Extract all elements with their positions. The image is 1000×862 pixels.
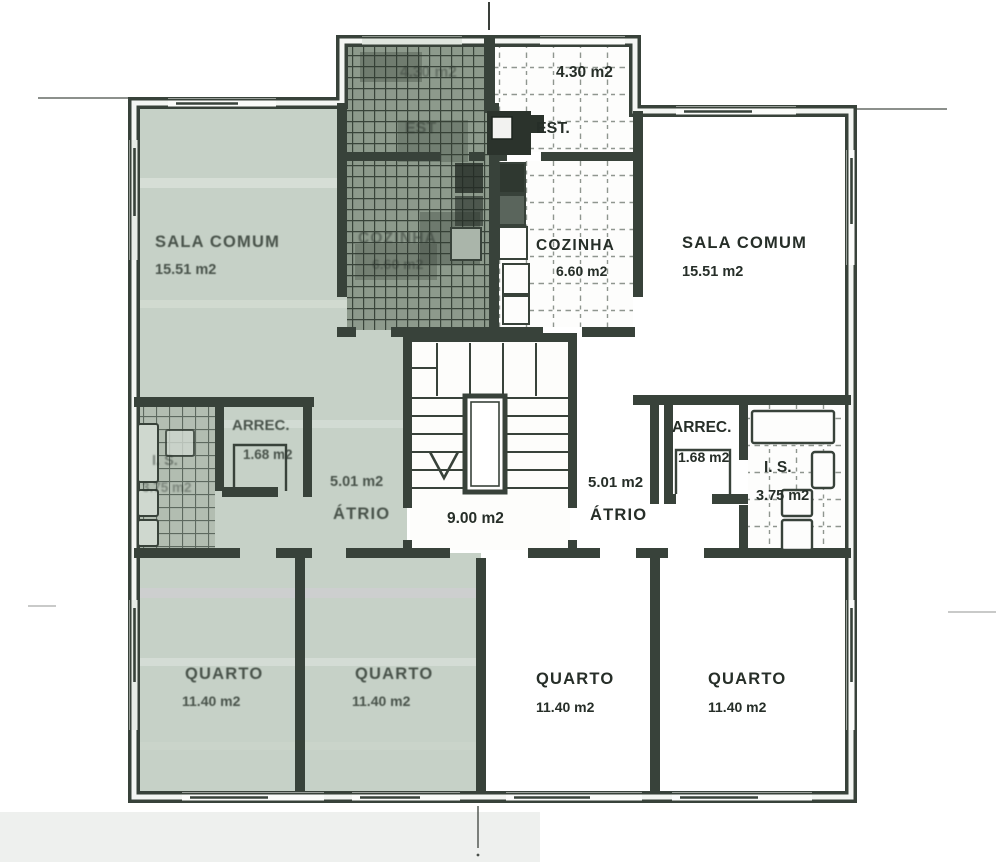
room-label-atrio-right: ÁTRIO — [590, 505, 647, 524]
room-label-quarto-3: QUARTO — [536, 670, 614, 688]
kitchen-left-fixtures — [451, 163, 483, 260]
room-label-arrec-right: ARREC. — [672, 419, 731, 436]
room-label-is-right-area: 3.75 m2 — [756, 488, 809, 504]
room-label-quarto-2: QUARTO — [355, 665, 433, 683]
floor-plan-canvas: 4.30 m2 EST 4.30 m2 EST. SALA COMUM 15.5… — [0, 0, 1000, 862]
room-label-est-left-area: 4.30 m2 — [400, 64, 457, 81]
room-label-cozinha-left-area: 6.60 m2 — [372, 256, 424, 272]
floor-plan: 4.30 m2 EST 4.30 m2 EST. SALA COMUM 15.5… — [0, 0, 1000, 862]
room-label-is-right: I. S. — [764, 459, 792, 476]
room-label-est-right-area: 4.30 m2 — [556, 64, 613, 81]
room-label-cozinha-right-area: 6.60 m2 — [556, 263, 608, 279]
room-label-sala-left: SALA COMUM — [155, 233, 280, 251]
room-label-atrio-right-area: 5.01 m2 — [588, 474, 643, 491]
room-label-is-left-area: 3.75 m2 — [142, 480, 192, 495]
room-label-arrec-right-area: 1.68 m2 — [678, 449, 730, 465]
room-label-cozinha-right: COZINHA — [536, 237, 615, 254]
room-label-sala-right-area: 15.51 m2 — [682, 264, 743, 280]
room-label-quarto-4-area: 11.40 m2 — [708, 699, 767, 715]
room-label-est-right: EST. — [536, 120, 570, 137]
room-label-cozinha-left: COZINHA — [358, 230, 437, 247]
room-label-stair-hall-area: 9.00 m2 — [447, 510, 504, 527]
room-label-sala-left-area: 15.51 m2 — [155, 262, 216, 278]
room-label-arrec-left-area: 1.68 m2 — [243, 447, 293, 462]
room-label-atrio-left: ÁTRIO — [333, 504, 390, 523]
kitchen-right-fixtures — [499, 163, 529, 324]
room-label-quarto-1: QUARTO — [185, 665, 263, 683]
room-label-quarto-3-area: 11.40 m2 — [536, 699, 595, 715]
room-label-atrio-left-area: 5.01 m2 — [330, 474, 383, 490]
room-label-quarto-1-area: 11.40 m2 — [182, 693, 241, 709]
room-label-quarto-4: QUARTO — [708, 670, 786, 688]
room-label-sala-right: SALA COMUM — [682, 234, 807, 252]
room-label-quarto-2-area: 11.40 m2 — [352, 693, 411, 709]
room-label-est-left: EST — [405, 120, 436, 137]
room-label-is-left: I. S. — [152, 453, 178, 469]
scan-shadow — [0, 812, 540, 862]
room-label-arrec-left: ARREC. — [232, 417, 290, 434]
